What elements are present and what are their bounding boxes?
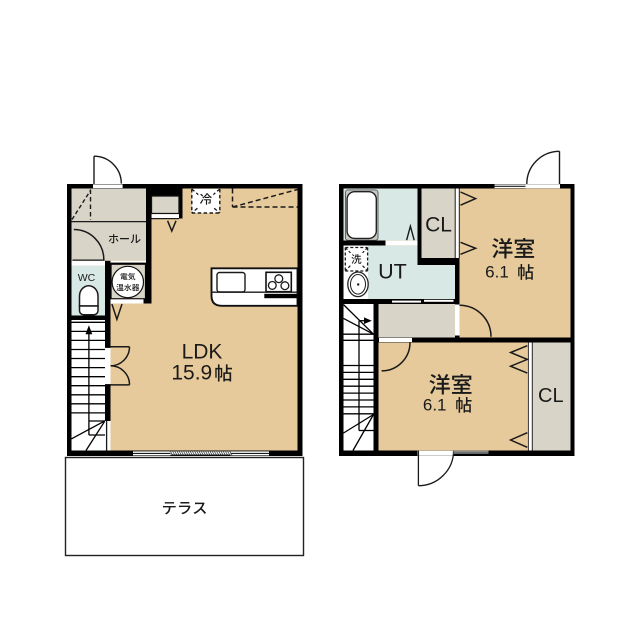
svg-text:6.1: 6.1 xyxy=(423,396,447,415)
svg-text:6.1: 6.1 xyxy=(485,262,509,281)
svg-text:CL: CL xyxy=(538,385,564,407)
svg-text:CL: CL xyxy=(425,213,452,236)
svg-text:15.9: 15.9 xyxy=(171,362,212,385)
svg-text:WC: WC xyxy=(78,272,96,284)
svg-text:UT: UT xyxy=(378,259,407,283)
svg-text:LDK: LDK xyxy=(182,341,223,364)
